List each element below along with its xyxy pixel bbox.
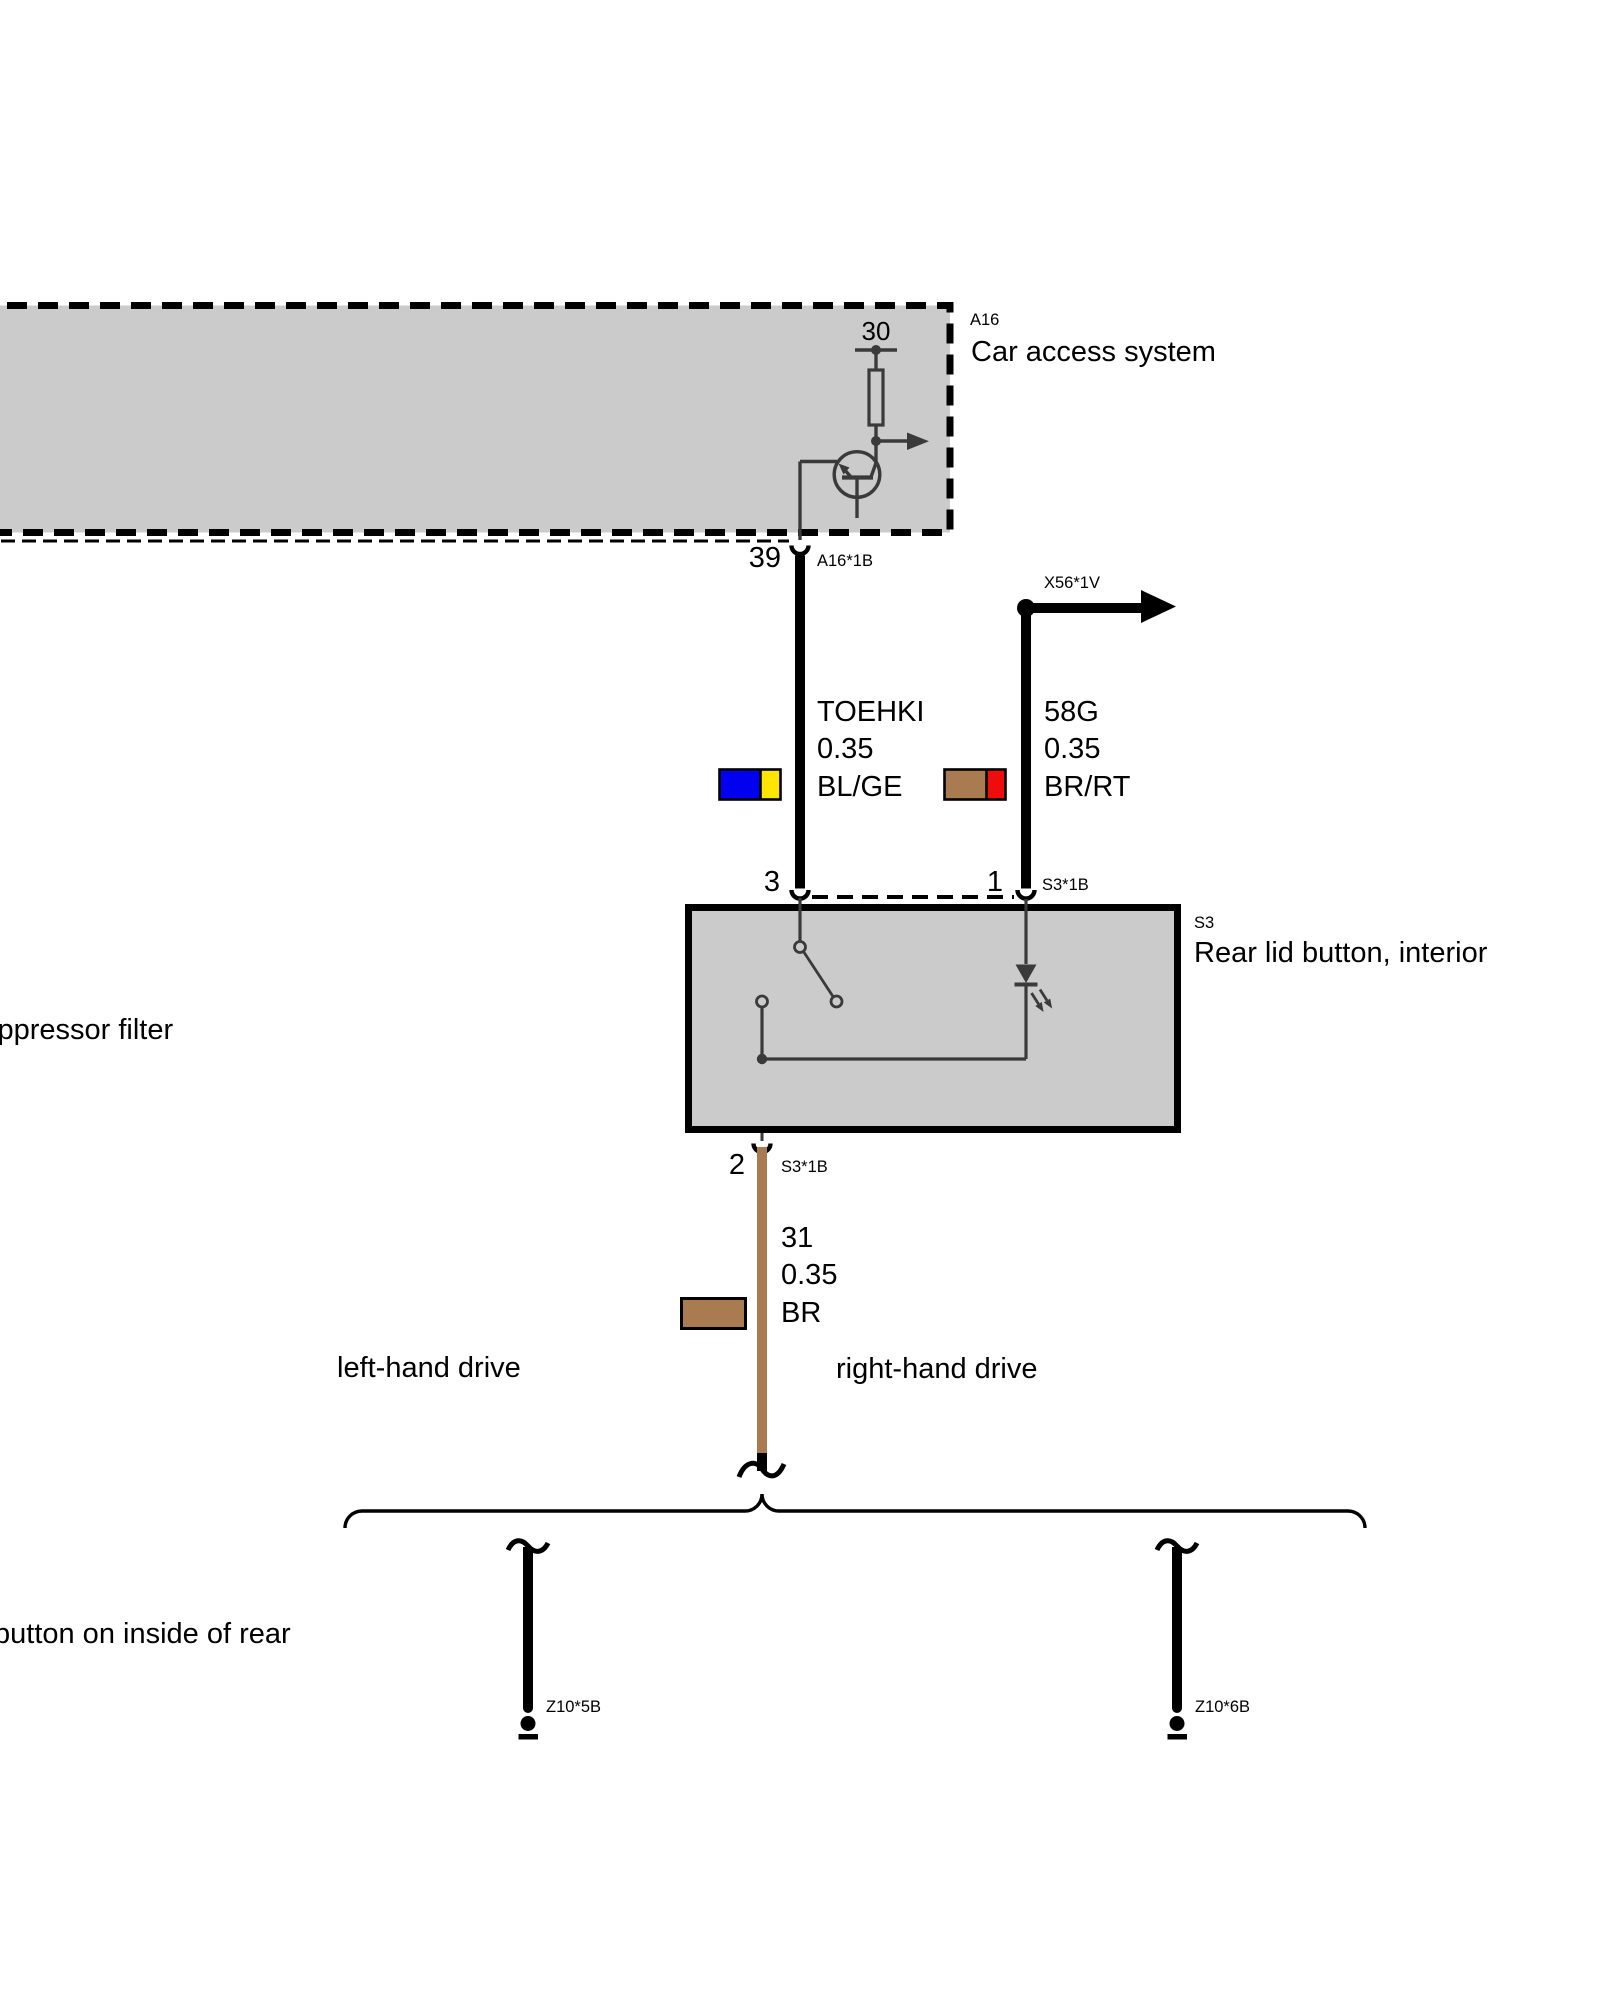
svg-text:BR/RT: BR/RT — [1044, 771, 1131, 803]
svg-text:30: 30 — [862, 316, 891, 346]
svg-text:3: 3 — [764, 866, 780, 898]
svg-text:0.35: 0.35 — [781, 1259, 837, 1291]
svg-text:right-hand drive: right-hand drive — [836, 1353, 1038, 1385]
svg-text:Z10*6B: Z10*6B — [1195, 1698, 1250, 1716]
svg-text:1: 1 — [987, 866, 1003, 898]
svg-text:31: 31 — [781, 1222, 813, 1254]
svg-text:X56*1V: X56*1V — [1044, 574, 1100, 592]
svg-text:A16: A16 — [970, 311, 999, 329]
svg-text:Rear lid button, interior: Rear lid button, interior — [1194, 937, 1488, 969]
svg-text:58G: 58G — [1044, 696, 1099, 728]
svg-text:TOEHKI: TOEHKI — [817, 696, 924, 728]
svg-text:0.35: 0.35 — [1044, 733, 1100, 765]
svg-text:S3: S3 — [1194, 914, 1214, 932]
svg-text:A16*1B: A16*1B — [817, 552, 873, 570]
svg-text:Suppressor filter: Suppressor filter — [0, 1014, 173, 1046]
svg-text:BL/GE: BL/GE — [817, 771, 902, 803]
svg-text:39: 39 — [749, 542, 781, 574]
svg-text:Car access system: Car access system — [971, 336, 1216, 368]
svg-text:2: 2 — [729, 1149, 745, 1181]
svg-text:button on inside of rear: button on inside of rear — [0, 1618, 291, 1650]
svg-text:left-hand drive: left-hand drive — [337, 1352, 521, 1384]
svg-text:Z10*5B: Z10*5B — [546, 1698, 601, 1716]
svg-text:BR: BR — [781, 1297, 821, 1329]
svg-text:S3*1B: S3*1B — [781, 1158, 828, 1176]
svg-text:S3*1B: S3*1B — [1042, 876, 1089, 894]
svg-text:0.35: 0.35 — [817, 733, 873, 765]
